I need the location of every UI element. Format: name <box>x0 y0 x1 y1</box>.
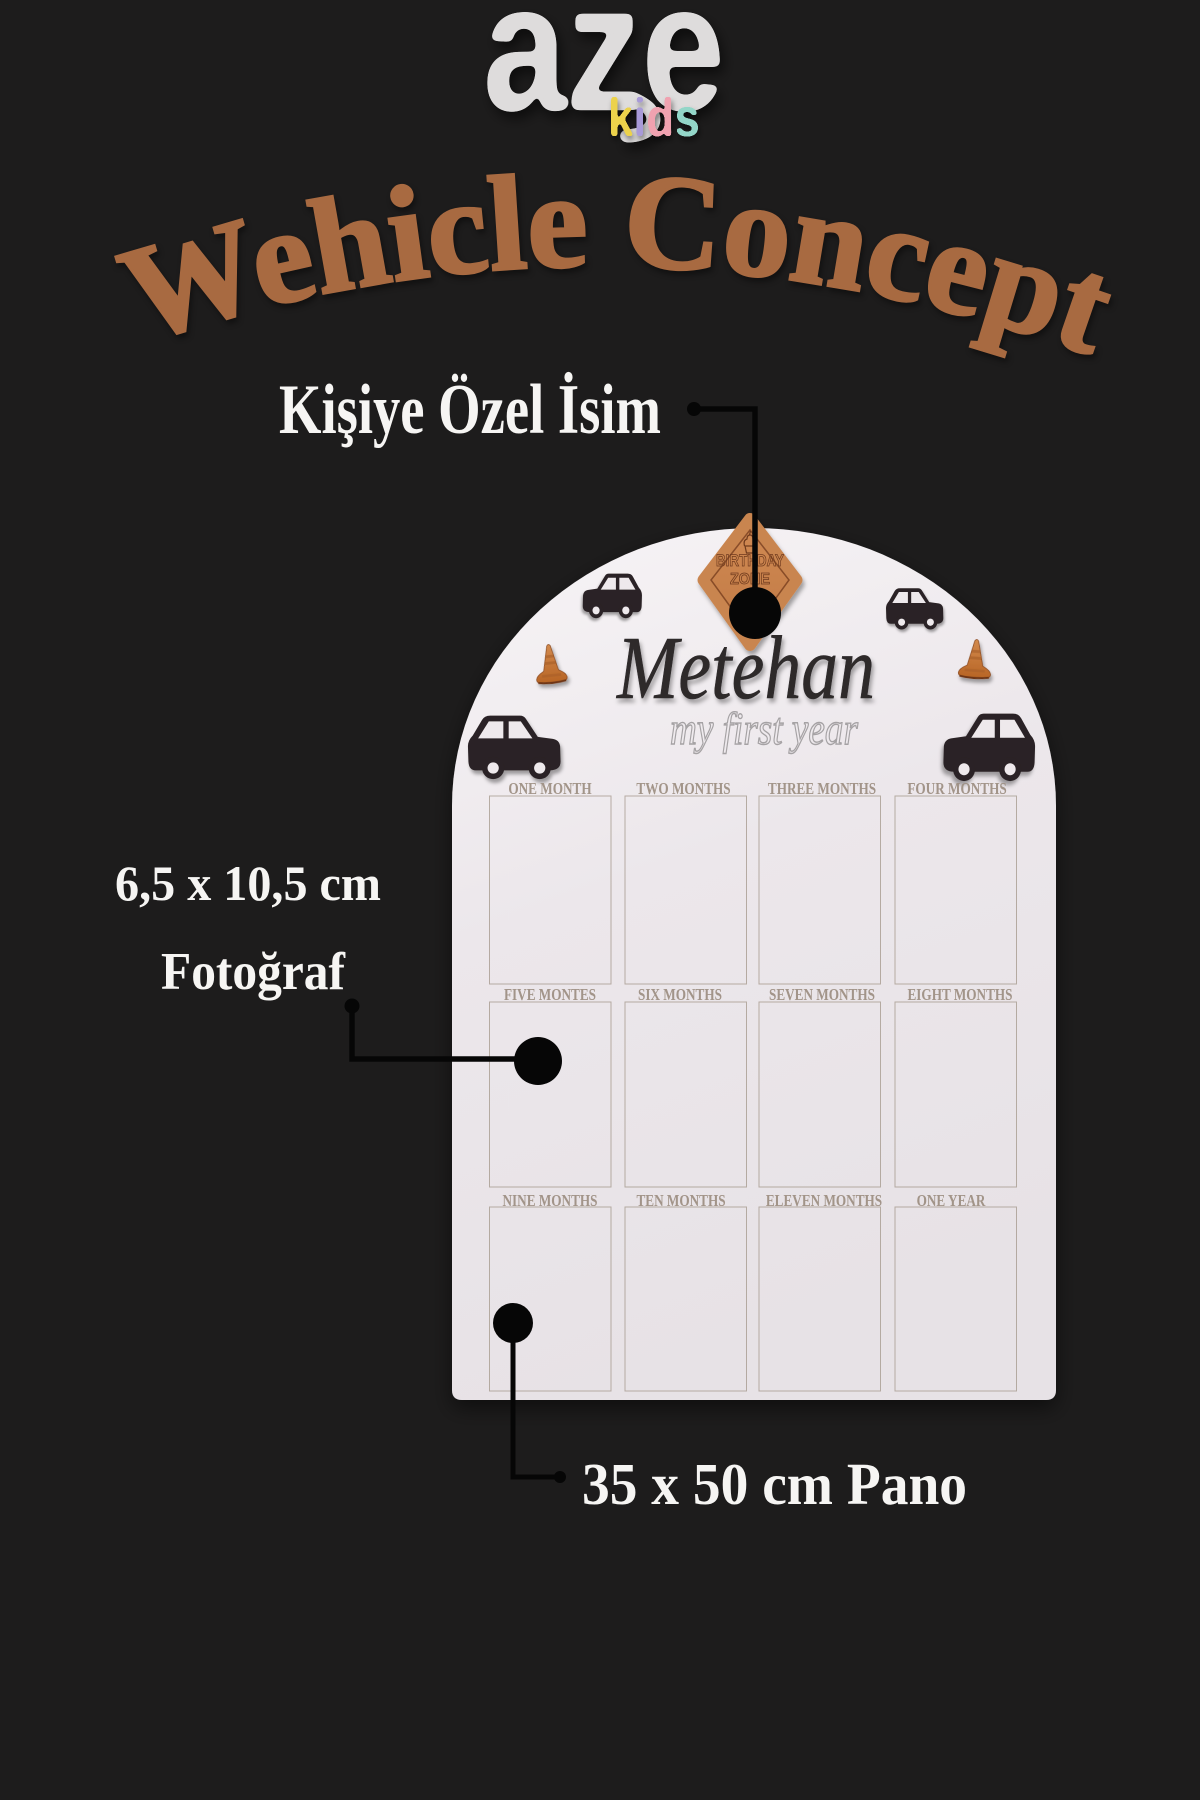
svg-text:6,5 x 10,5 cm: 6,5 x 10,5 cm <box>115 855 381 911</box>
svg-text:NINE MONTHS: NINE MONTHS <box>503 1193 598 1211</box>
svg-text:my first year: my first year <box>670 703 859 754</box>
svg-text:SIX MONTHS: SIX MONTHS <box>638 987 722 1005</box>
svg-text:ONE YEAR: ONE YEAR <box>917 1193 986 1211</box>
svg-text:ELEVEN MONTHS: ELEVEN MONTHS <box>766 1193 882 1211</box>
svg-text:BIRTHDAY: BIRTHDAY <box>716 551 785 570</box>
svg-text:TEN MONTHS: TEN MONTHS <box>636 1193 725 1211</box>
svg-text:THREE MONTHS: THREE MONTHS <box>768 781 876 799</box>
svg-text:ONE MONTH: ONE MONTH <box>508 781 592 799</box>
svg-text:FIVE MONTES: FIVE MONTES <box>504 987 596 1005</box>
svg-text:Fotoğraf: Fotoğraf <box>161 943 346 1001</box>
svg-text:SEVEN MONTHS: SEVEN MONTHS <box>769 987 875 1005</box>
svg-text:ZONE: ZONE <box>730 571 770 588</box>
svg-text:FOUR MONTHS: FOUR MONTHS <box>907 781 1006 799</box>
svg-text:EIGHT MONTHS: EIGHT MONTHS <box>908 987 1013 1005</box>
svg-text:kids: kids <box>608 88 700 148</box>
svg-text:TWO MONTHS: TWO MONTHS <box>636 781 730 799</box>
svg-text:Kişiye Özel İsim: Kişiye Özel İsim <box>279 371 661 449</box>
svg-text:35 x 50 cm Pano: 35 x 50 cm Pano <box>582 1451 967 1517</box>
